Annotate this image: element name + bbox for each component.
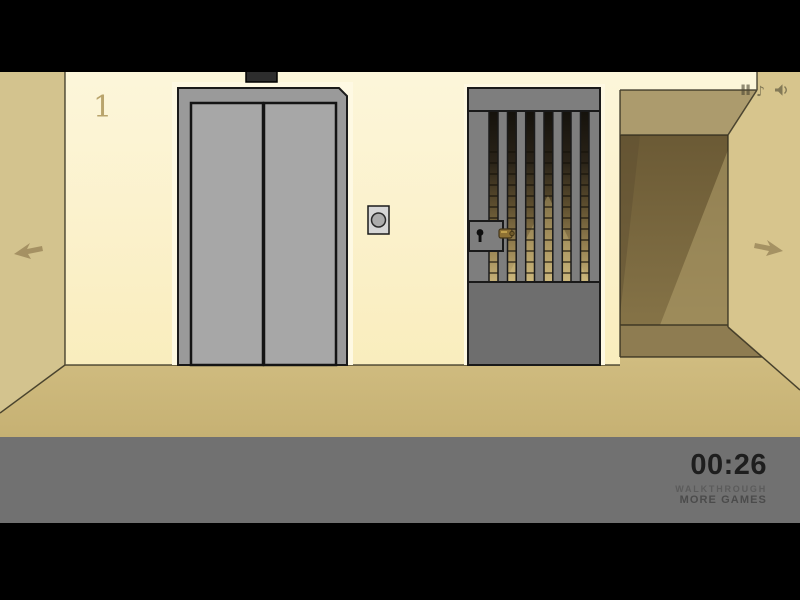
floor [0, 357, 800, 437]
game-stage: ♪ 1 00:26 WALKTHROUGH MORE GAMES [0, 0, 800, 600]
jail-gate[interactable] [464, 84, 605, 365]
more-games-link[interactable]: MORE GAMES [680, 494, 767, 506]
call-button-icon[interactable] [372, 213, 386, 227]
floor-number-label: 1 [93, 93, 112, 123]
music-note-icon[interactable]: ♪ [756, 84, 765, 100]
elevator [172, 70, 353, 365]
gate-bottom-panel[interactable] [468, 282, 600, 365]
elevator-door-left[interactable] [191, 103, 263, 365]
letterbox-top [0, 0, 800, 72]
left-side-wall [0, 72, 65, 413]
elevator-door-right[interactable] [264, 103, 336, 365]
elevator-call-button[interactable] [368, 206, 389, 234]
letterbox-bottom [0, 523, 800, 600]
gate-latch[interactable] [499, 229, 514, 238]
walkthrough-link[interactable]: WALKTHROUGH [675, 484, 767, 494]
room-scene: ♪ [0, 0, 800, 600]
elevator-doors[interactable] [191, 103, 336, 365]
timer-display: 00:26 [690, 450, 767, 480]
gate-header[interactable] [468, 88, 600, 111]
lock-box[interactable] [469, 221, 503, 251]
hud-bar [0, 437, 800, 523]
